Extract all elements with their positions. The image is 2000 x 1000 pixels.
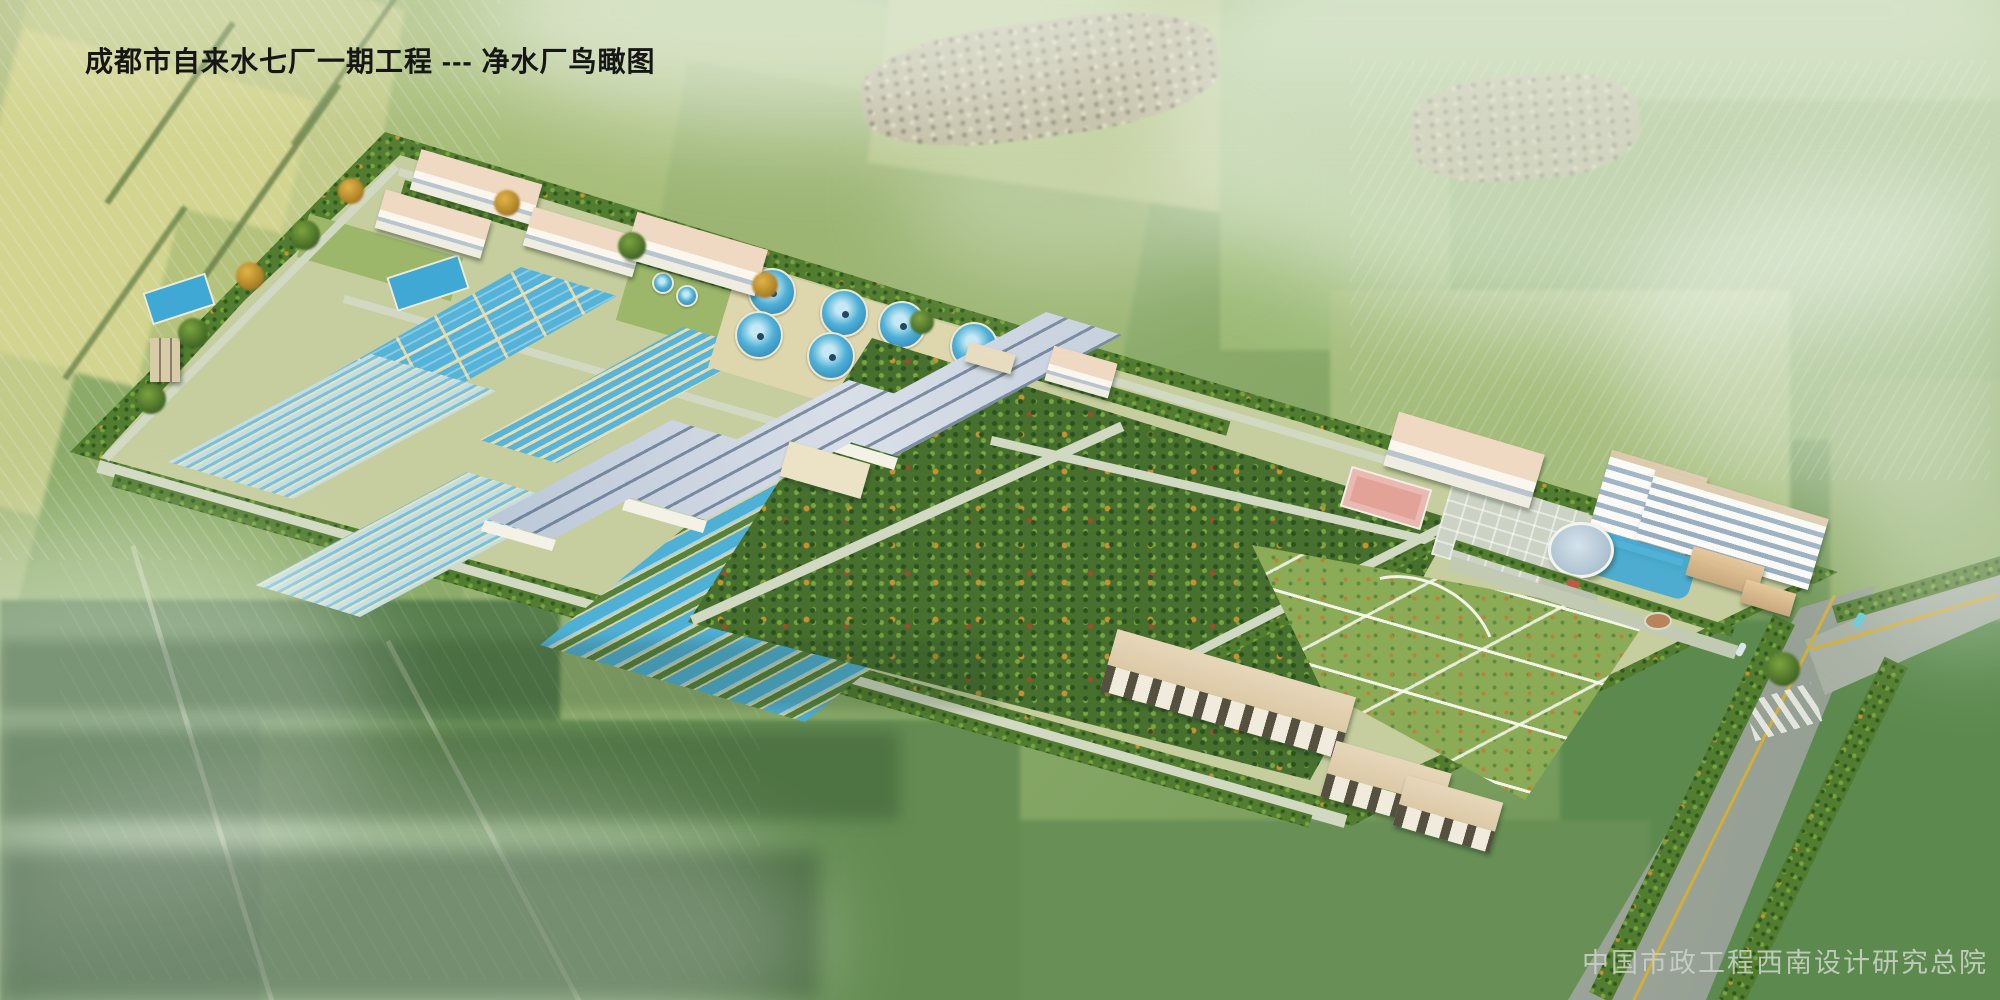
clarifier-hub [757,333,764,340]
tree [290,220,320,250]
tree [1766,652,1800,686]
water-tower [150,338,180,382]
tree [910,310,934,334]
tree [178,318,208,348]
tree [618,232,646,260]
tree [494,190,520,216]
shade-band [0,640,1000,710]
tree [752,272,778,298]
clarifier-hub [900,323,907,330]
credit-line: 中国市政工程西南设计研究总院 [1582,941,1988,980]
shade-band [0,730,900,820]
clarifier-tank [735,311,783,359]
chemical-tank [676,285,698,307]
clarifier-hub [829,354,836,361]
chemical-tank [652,272,674,294]
roundabout [1644,612,1672,630]
clarifier-hub [842,311,849,318]
tree [136,384,166,414]
shade-band [0,850,820,1000]
round-pavilion [1548,522,1614,578]
clarifier-tank [807,332,855,380]
clarifier-tank [820,289,868,337]
aerial-rendering-scene: 成都市自来水七厂一期工程 --- 净水厂鸟瞰图 中国市政工程西南设计研究总院 [0,0,2000,1000]
tree [338,178,364,204]
page-title: 成都市自来水七厂一期工程 --- 净水厂鸟瞰图 [85,40,656,80]
tree [236,262,264,290]
haze-blob [900,120,1260,280]
